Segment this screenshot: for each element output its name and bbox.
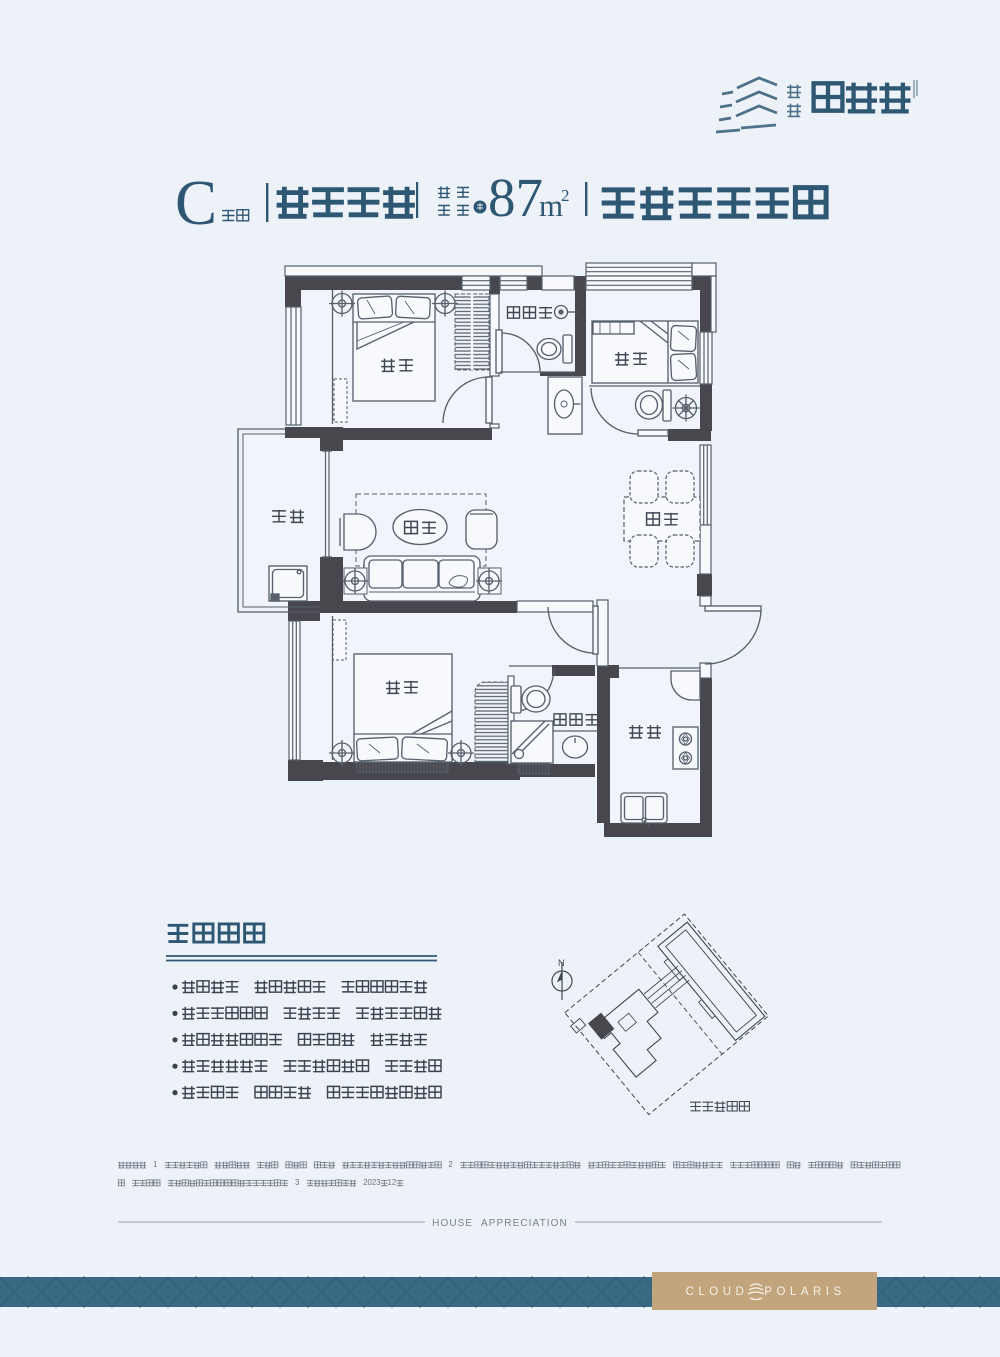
svg-text:2: 2 [448, 1160, 452, 1169]
svg-text:HOUSE APPRECIATION: HOUSE APPRECIATION [432, 1218, 568, 1229]
svg-text:2: 2 [561, 186, 570, 205]
svg-text:1: 1 [153, 1160, 157, 1169]
svg-text:2023: 2023 [363, 1178, 380, 1187]
svg-text:3: 3 [295, 1178, 299, 1187]
svg-text:N: N [558, 958, 565, 968]
svg-text:POLARIS: POLARIS [764, 1286, 845, 1298]
svg-text:87: 87 [488, 167, 543, 228]
svg-text:m: m [539, 188, 563, 223]
svg-text:12: 12 [388, 1178, 397, 1187]
svg-text:C: C [175, 168, 217, 238]
svg-text:CLOUD: CLOUD [686, 1286, 749, 1298]
